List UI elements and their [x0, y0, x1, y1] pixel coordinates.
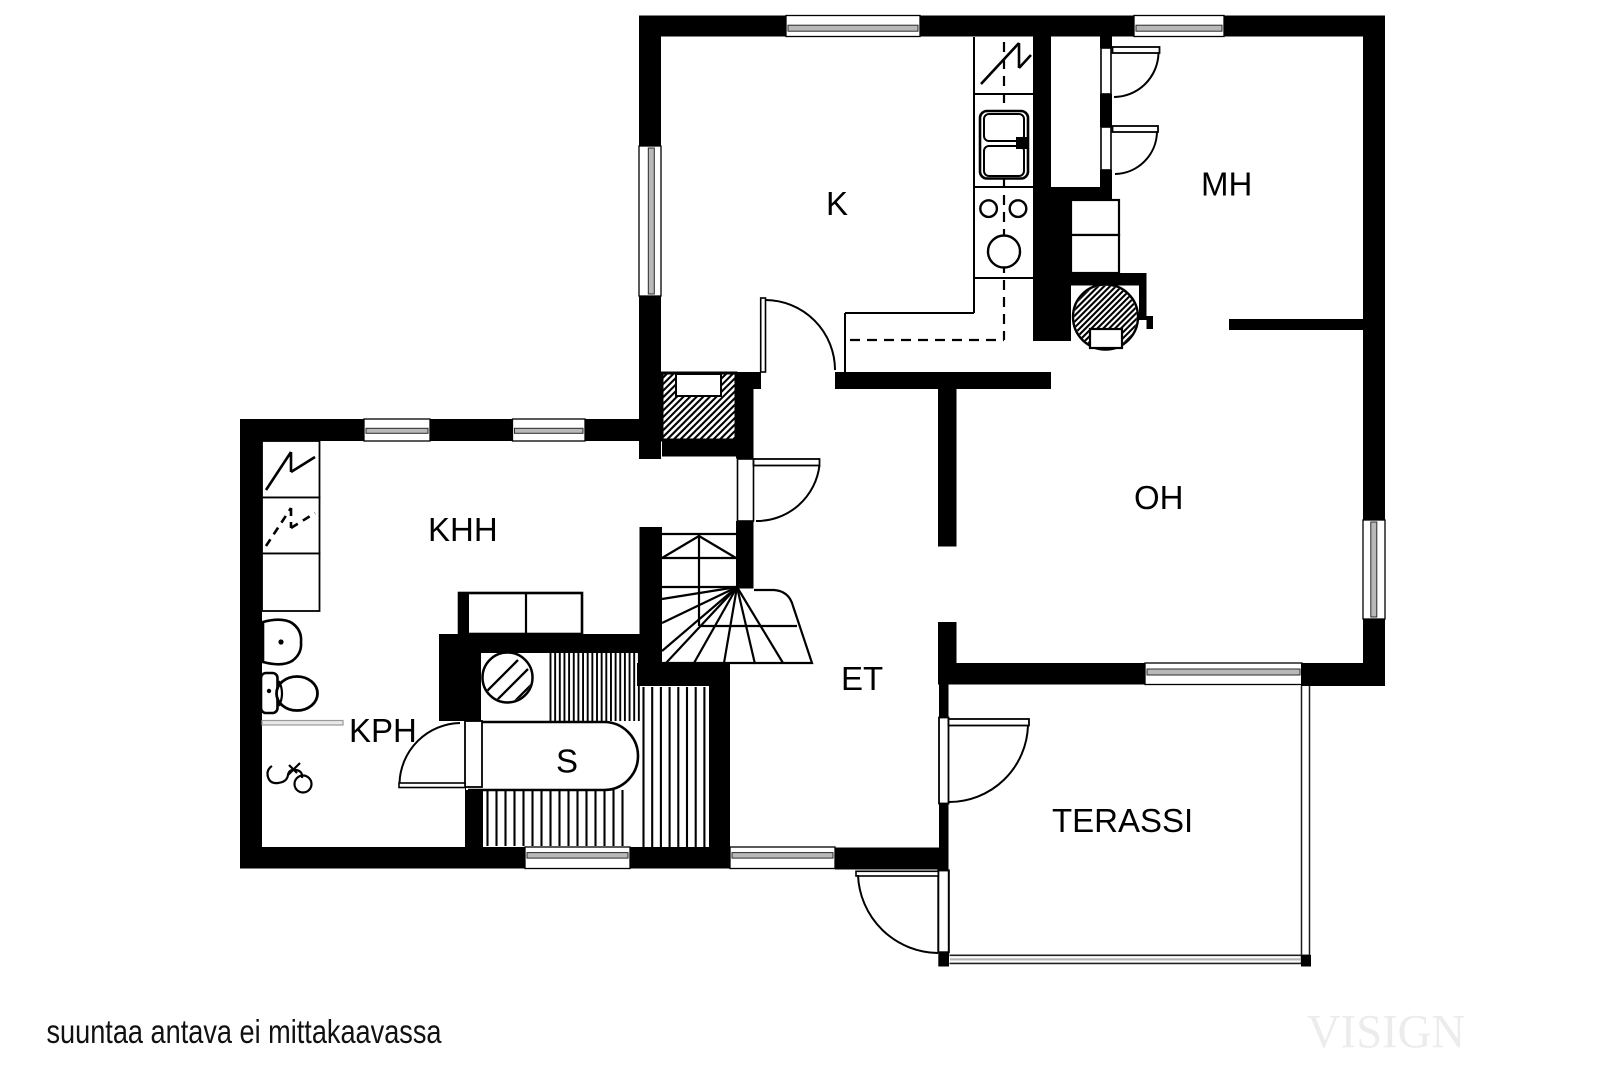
svg-text:TERASSI: TERASSI [1052, 802, 1193, 839]
svg-text:KHH: KHH [428, 511, 498, 548]
svg-text:OH: OH [1134, 479, 1184, 516]
svg-text:K: K [826, 185, 848, 222]
svg-text:KPH: KPH [349, 712, 417, 749]
svg-text:VISIGN: VISIGN [1307, 1006, 1465, 1059]
svg-text:ET: ET [841, 660, 883, 697]
svg-text:S: S [556, 743, 578, 780]
svg-text:suuntaa antava ei mittakaavass: suuntaa antava ei mittakaavassa [47, 1013, 443, 1050]
svg-text:MH: MH [1201, 166, 1252, 203]
